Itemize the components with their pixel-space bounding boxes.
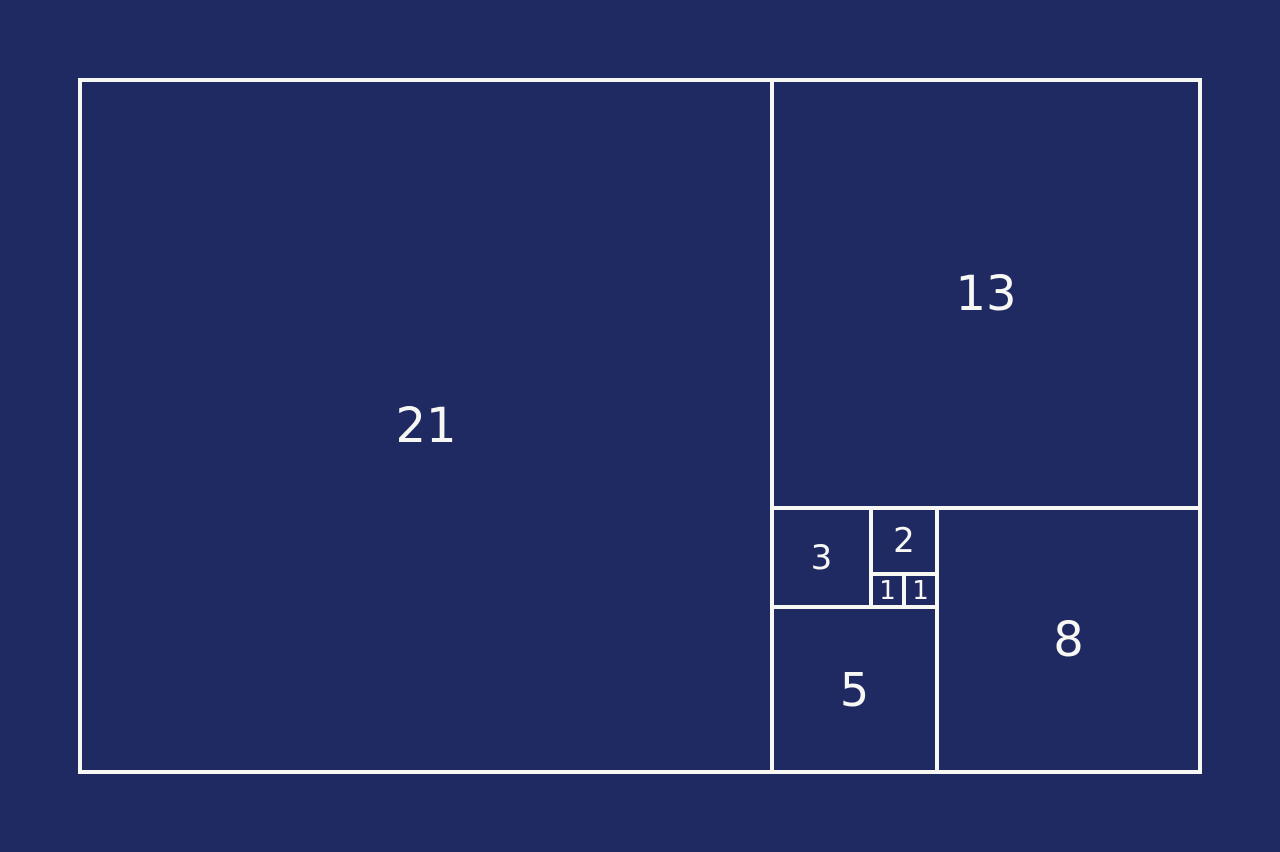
fib-square-label-2: 2 — [893, 524, 915, 558]
fib-square-21: 21 — [78, 78, 774, 774]
fib-square-1-b: 1 — [902, 572, 939, 609]
fib-square-label-1-b: 1 — [912, 578, 929, 604]
fib-square-label-3: 3 — [811, 541, 833, 575]
fib-square-label-13: 13 — [955, 270, 1016, 318]
fib-square-5: 5 — [770, 605, 939, 774]
fib-square-8: 8 — [935, 506, 1202, 774]
fib-square-2: 2 — [869, 506, 939, 576]
fib-square-1: 1 — [869, 572, 906, 609]
fibonacci-blueprint-canvas: 2113853211 — [0, 0, 1280, 852]
fib-square-3: 3 — [770, 506, 873, 609]
fib-square-label-1: 1 — [879, 578, 896, 604]
fib-square-13: 13 — [770, 78, 1202, 510]
fib-square-label-5: 5 — [840, 667, 869, 713]
fib-square-label-8: 8 — [1053, 616, 1084, 664]
fib-square-label-21: 21 — [395, 402, 456, 450]
fibonacci-golden-rectangle-diagram: 2113853211 — [80, 80, 1200, 772]
